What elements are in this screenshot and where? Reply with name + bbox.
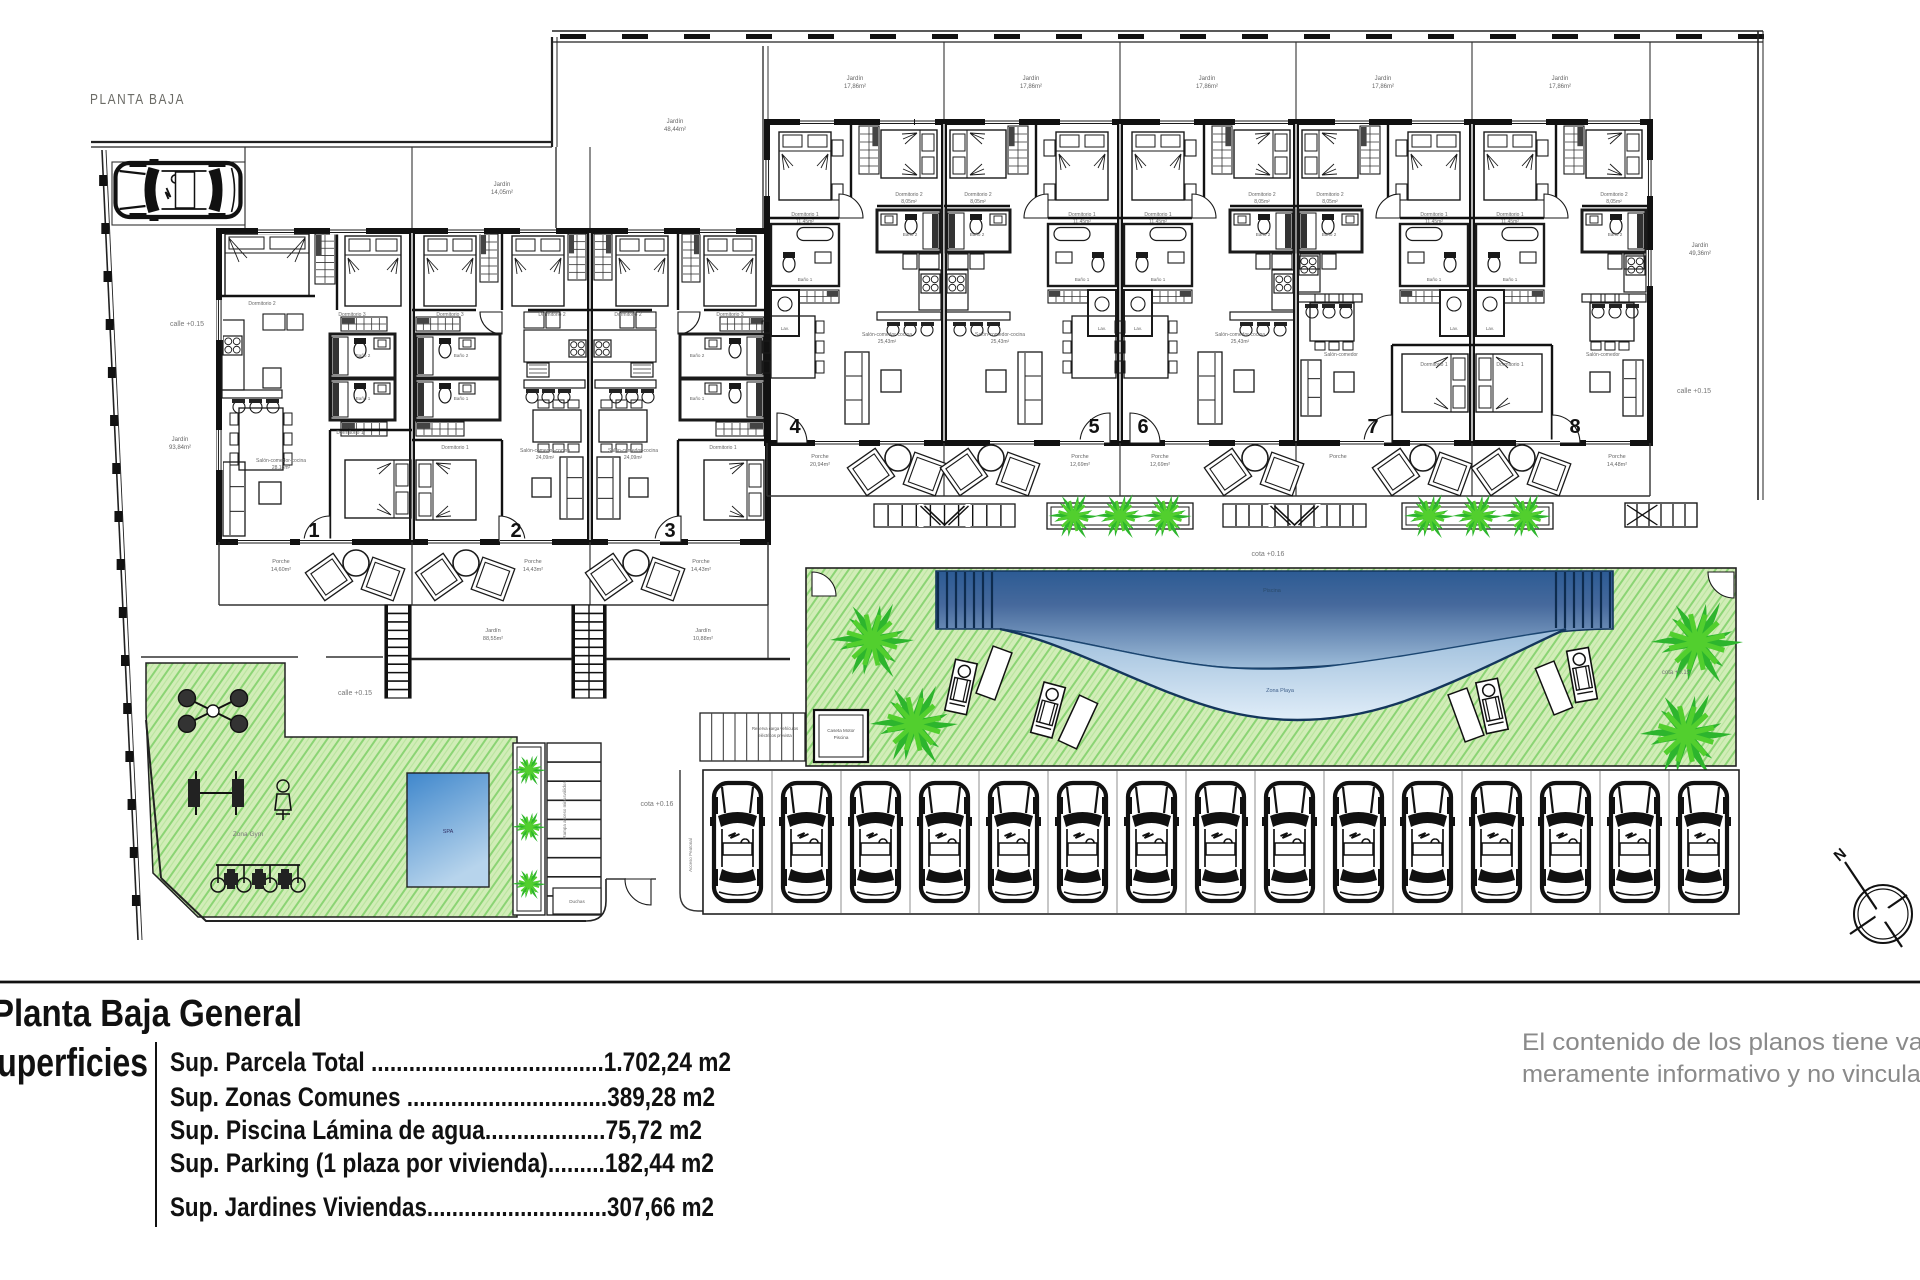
svg-text:Dormitorio 3: Dormitorio 3: [436, 312, 463, 318]
svg-text:Lav.: Lav.: [1134, 326, 1142, 331]
svg-text:24,09m²: 24,09m²: [536, 455, 555, 461]
svg-text:Salón-comedor: Salón-comedor: [1586, 352, 1620, 358]
svg-text:Caseta Motor: Caseta Motor: [827, 728, 855, 733]
svg-text:Salón-comedor: Salón-comedor: [1324, 352, 1358, 358]
svg-text:Dormitorio 2: Dormitorio 2: [895, 192, 922, 198]
svg-text:Salón-comedor-cocina: Salón-comedor-cocina: [862, 332, 912, 338]
svg-text:8,05m²: 8,05m²: [970, 199, 986, 205]
svg-text:Sup. Parking (1 plaza por vivi: Sup. Parking (1 plaza por vivienda).....…: [170, 1148, 714, 1178]
svg-text:17,86m²: 17,86m²: [1196, 84, 1218, 90]
svg-text:Jardín: Jardín: [1375, 76, 1392, 82]
svg-text:Porche: Porche: [272, 559, 289, 565]
svg-text:Jardín: Jardín: [1552, 76, 1569, 82]
svg-text:24,09m²: 24,09m²: [624, 455, 643, 461]
svg-text:Baño 1: Baño 1: [690, 396, 705, 401]
svg-text:Jardín: Jardín: [1023, 76, 1040, 82]
svg-text:Baño 2: Baño 2: [356, 353, 371, 358]
svg-text:Dormitorio 1: Dormitorio 1: [441, 445, 468, 451]
svg-text:11,45m²: 11,45m²: [1425, 219, 1443, 225]
svg-text:Dormitorio 1: Dormitorio 1: [1420, 362, 1447, 368]
svg-text:Salón-comedor-cocina: Salón-comedor-cocina: [975, 332, 1025, 338]
svg-text:Baño 1: Baño 1: [356, 396, 371, 401]
svg-text:Lav.: Lav.: [781, 326, 789, 331]
svg-text:14,05m²: 14,05m²: [491, 190, 513, 196]
svg-text:6: 6: [1137, 416, 1148, 438]
svg-text:17,86m²: 17,86m²: [1020, 84, 1042, 90]
svg-text:Porche: Porche: [811, 454, 828, 460]
svg-text:Jardín: Jardín: [172, 437, 189, 443]
svg-text:14,48m²: 14,48m²: [1607, 462, 1627, 468]
svg-text:SPA: SPA: [443, 829, 454, 835]
svg-text:Dormitorio 2: Dormitorio 2: [964, 192, 991, 198]
svg-text:Dormitorio 1: Dormitorio 1: [1068, 212, 1095, 218]
svg-text:Porche: Porche: [1071, 454, 1088, 460]
svg-text:Dormitorio 1: Dormitorio 1: [709, 445, 736, 451]
svg-text:Baño 1: Baño 1: [1075, 277, 1090, 282]
svg-text:8,05m²: 8,05m²: [1322, 199, 1338, 205]
svg-text:Salón-comedor-cocina: Salón-comedor-cocina: [608, 448, 658, 454]
svg-text:Baño 1: Baño 1: [454, 396, 469, 401]
svg-text:93,84m²: 93,84m²: [169, 445, 191, 451]
svg-text:8: 8: [1569, 416, 1580, 438]
svg-text:Salón-comedor-cocina: Salón-comedor-cocina: [256, 458, 306, 464]
svg-text:Porche: Porche: [1329, 454, 1346, 460]
svg-text:Dormitorio 1: Dormitorio 1: [336, 430, 363, 436]
svg-text:7: 7: [1367, 416, 1378, 438]
svg-text:calle +0.15: calle +0.15: [1677, 388, 1711, 395]
svg-text:cota +0.15: cota +0.15: [1662, 670, 1691, 676]
svg-text:11,45m²: 11,45m²: [1073, 219, 1091, 225]
svg-text:20,94m²: 20,94m²: [810, 462, 830, 468]
svg-text:Jardín: Jardín: [1692, 243, 1709, 249]
svg-text:5: 5: [1088, 416, 1099, 438]
svg-text:Dormitorio 3: Dormitorio 3: [338, 312, 365, 318]
svg-text:Dormitorio 1: Dormitorio 1: [1496, 362, 1523, 368]
svg-text:cota +0.16: cota +0.16: [641, 801, 674, 808]
svg-text:Lav.: Lav.: [1450, 326, 1458, 331]
svg-text:Duchas: Duchas: [569, 899, 585, 904]
svg-text:28,18m²: 28,18m²: [272, 465, 291, 471]
svg-text:Porche: Porche: [692, 559, 709, 565]
svg-text:PLANTA BAJA: PLANTA BAJA: [90, 91, 185, 108]
svg-text:Zona Playa: Zona Playa: [1266, 688, 1295, 694]
svg-text:Zona Gym: Zona Gym: [233, 831, 263, 838]
svg-text:Sup. Zonas Comunes ...........: Sup. Zonas Comunes .....................…: [170, 1082, 715, 1112]
svg-text:El contenido de los planos tie: El contenido de los planos tiene valor: [1522, 1029, 1920, 1056]
svg-text:Sup. Parcela Total ...........: Sup. Parcela Total .....................…: [170, 1047, 731, 1077]
svg-text:17,86m²: 17,86m²: [844, 84, 866, 90]
svg-text:Porche: Porche: [524, 559, 541, 565]
svg-text:cota +0.16: cota +0.16: [1252, 551, 1285, 558]
svg-text:Porche: Porche: [1151, 454, 1168, 460]
svg-text:Jardín: Jardín: [1199, 76, 1216, 82]
svg-text:49,36m²: 49,36m²: [1689, 251, 1711, 257]
svg-text:11,45m²: 11,45m²: [1501, 219, 1519, 225]
svg-text:12,69m²: 12,69m²: [1150, 462, 1170, 468]
svg-text:8,05m²: 8,05m²: [1254, 199, 1270, 205]
svg-text:Piscina: Piscina: [1263, 588, 1282, 594]
svg-text:Dormitorio 3: Dormitorio 3: [716, 312, 743, 318]
svg-text:3: 3: [664, 520, 675, 542]
svg-text:Dormitorio 2: Dormitorio 2: [614, 312, 641, 318]
svg-text:Baño 2: Baño 2: [690, 353, 705, 358]
svg-text:Baño 2: Baño 2: [454, 353, 469, 358]
svg-text:Baño 1: Baño 1: [1151, 277, 1166, 282]
svg-text:Jardín: Jardín: [485, 628, 500, 634]
svg-text:14,43m²: 14,43m²: [691, 567, 711, 573]
svg-text:Baño 2: Baño 2: [903, 232, 918, 237]
svg-text:17,86m²: 17,86m²: [1549, 84, 1571, 90]
svg-text:11,45m²: 11,45m²: [796, 219, 814, 225]
svg-text:Baño 2: Baño 2: [1256, 232, 1271, 237]
svg-text:Dormitorio 2: Dormitorio 2: [248, 301, 275, 307]
svg-text:Dormitorio 1: Dormitorio 1: [1144, 212, 1171, 218]
svg-text:Dormitorio 2: Dormitorio 2: [1316, 192, 1343, 198]
svg-text:Jardín: Jardín: [847, 76, 864, 82]
svg-text:Jardín: Jardín: [695, 628, 710, 634]
svg-text:8,05m²: 8,05m²: [901, 199, 917, 205]
svg-text:calle +0.15: calle +0.15: [170, 321, 204, 328]
svg-text:25,43m²: 25,43m²: [878, 339, 897, 345]
svg-text:Superficies: Superficies: [0, 1041, 148, 1085]
svg-text:8,05m²: 8,05m²: [1606, 199, 1622, 205]
svg-text:Sup. Jardines Viviendas.......: Sup. Jardines Viviendas.................…: [170, 1192, 714, 1222]
svg-text:48,44m²: 48,44m²: [664, 127, 686, 133]
svg-text:4: 4: [789, 416, 801, 438]
svg-text:12,69m²: 12,69m²: [1070, 462, 1090, 468]
svg-text:Dormitorio 1: Dormitorio 1: [791, 212, 818, 218]
svg-text:Porche: Porche: [1608, 454, 1625, 460]
svg-text:Baño 1: Baño 1: [1503, 277, 1518, 282]
svg-text:eléctricos prevista: eléctricos prevista: [758, 733, 792, 738]
svg-text:14,43m²: 14,43m²: [523, 567, 543, 573]
svg-text:10,88m²: 10,88m²: [693, 636, 713, 642]
svg-text:Baño 1: Baño 1: [798, 277, 813, 282]
svg-text:Dormitorio 2: Dormitorio 2: [1248, 192, 1275, 198]
svg-text:Jardín: Jardín: [667, 119, 684, 125]
svg-text:Dormitorio 1: Dormitorio 1: [1496, 212, 1523, 218]
svg-text:Baño 1: Baño 1: [1427, 277, 1442, 282]
svg-text:Salón-comedor-cocina: Salón-comedor-cocina: [1215, 332, 1265, 338]
svg-text:Planta Baja General: Planta Baja General: [0, 993, 302, 1035]
svg-text:Dormitorio 1: Dormitorio 1: [1420, 212, 1447, 218]
svg-text:Piscina: Piscina: [834, 735, 849, 740]
svg-text:Sup. Piscina Lámina de agua...: Sup. Piscina Lámina de agua.............…: [170, 1115, 702, 1145]
svg-text:Baño 2: Baño 2: [1608, 232, 1623, 237]
svg-text:Dormitorio 2: Dormitorio 2: [1600, 192, 1627, 198]
svg-text:14,60m²: 14,60m²: [271, 567, 291, 573]
svg-text:meramente informativo y no vin: meramente informativo y no vinculante: [1522, 1061, 1920, 1088]
svg-text:calle +0.15: calle +0.15: [338, 690, 372, 697]
svg-text:88,55m²: 88,55m²: [483, 636, 503, 642]
svg-text:Jardín: Jardín: [494, 182, 511, 188]
svg-text:Baño 2: Baño 2: [1322, 232, 1337, 237]
svg-text:Dormitorio 2: Dormitorio 2: [538, 312, 565, 318]
svg-text:25,43m²: 25,43m²: [1231, 339, 1250, 345]
svg-text:Lav.: Lav.: [1486, 326, 1494, 331]
svg-text:Salón-comedor-cocina: Salón-comedor-cocina: [520, 448, 570, 454]
svg-text:17,86m²: 17,86m²: [1372, 84, 1394, 90]
svg-text:Acceso Peatonal: Acceso Peatonal: [688, 838, 693, 872]
svg-text:Baño 2: Baño 2: [970, 232, 985, 237]
svg-text:Rampa acceso minusválidos: Rampa acceso minusválidos: [562, 781, 567, 839]
svg-text:Lav.: Lav.: [1098, 326, 1106, 331]
svg-text:Reserva carga vehículos: Reserva carga vehículos: [752, 726, 798, 731]
svg-text:25,43m²: 25,43m²: [991, 339, 1010, 345]
svg-text:11,45m²: 11,45m²: [1149, 219, 1167, 225]
